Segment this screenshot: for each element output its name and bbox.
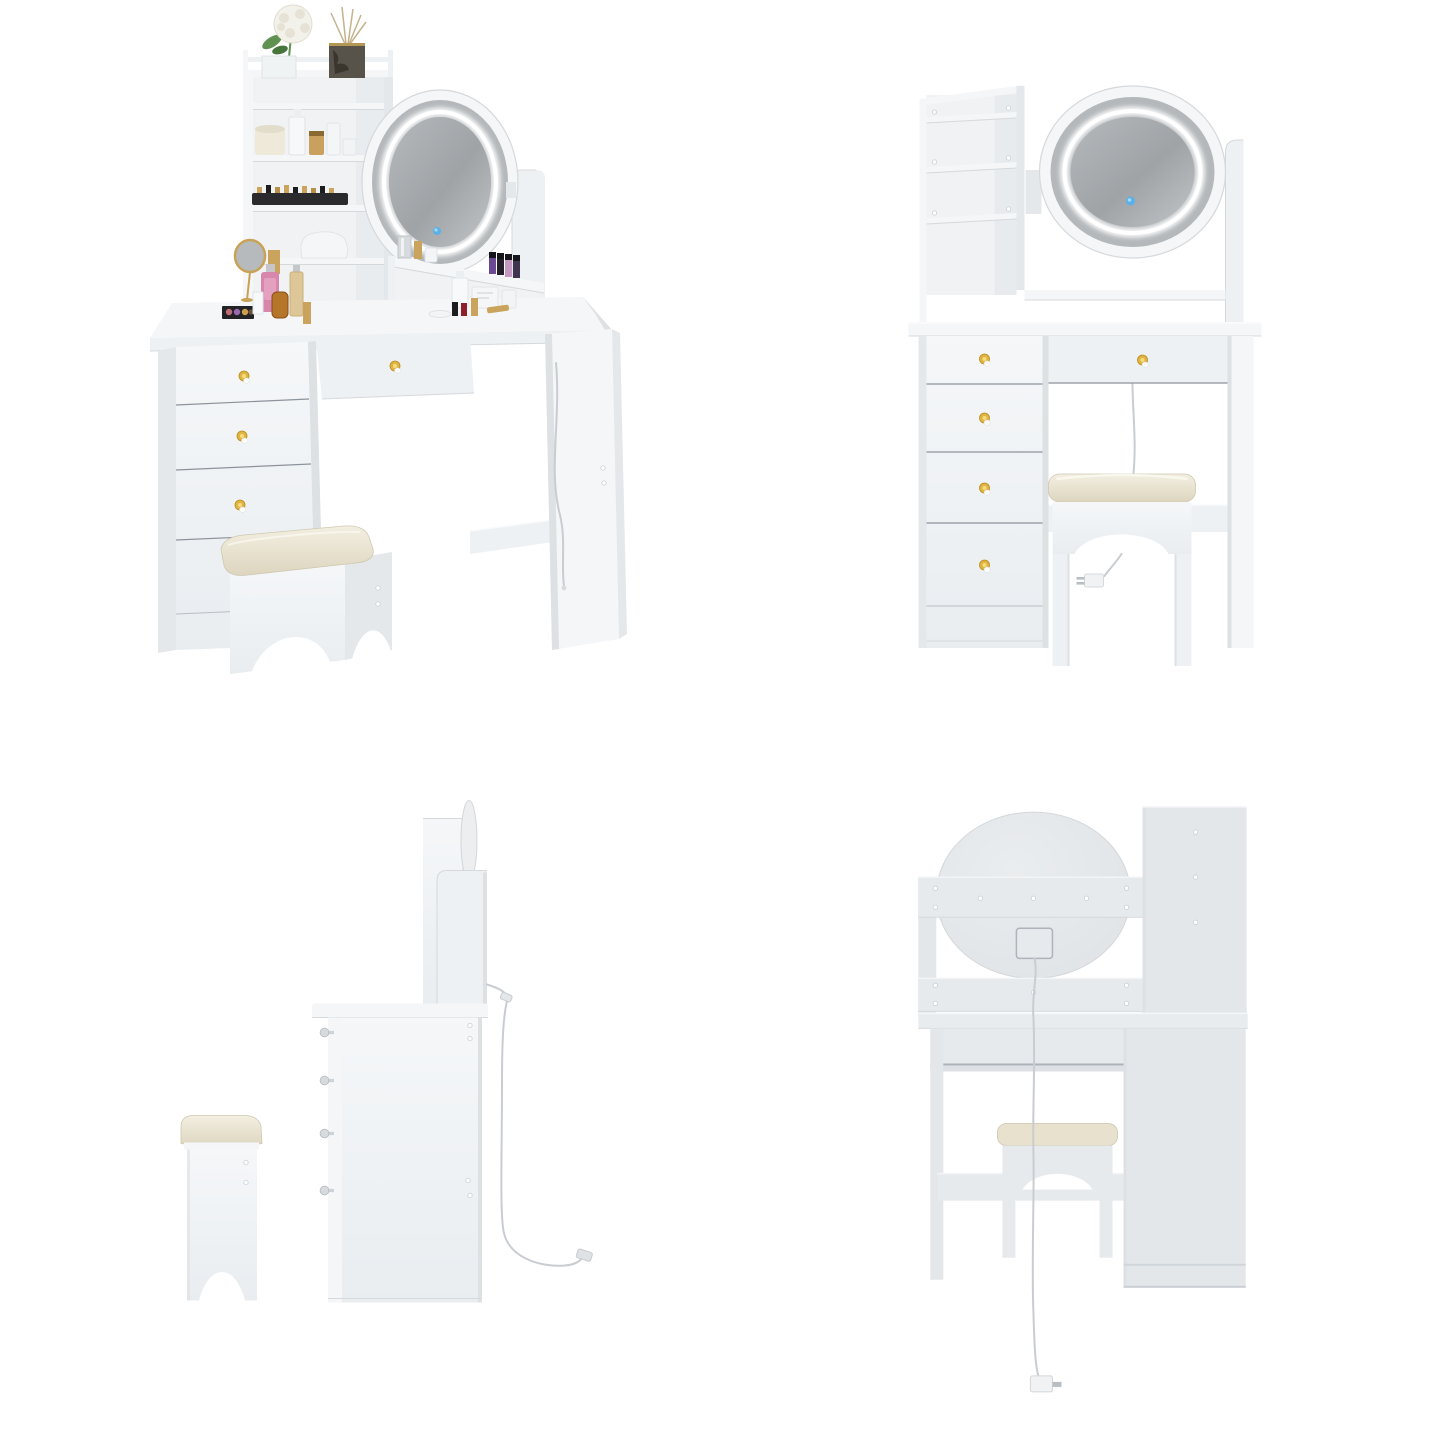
cabinet-side <box>328 1018 482 1303</box>
shelf-back <box>1143 807 1247 1013</box>
desktop <box>909 322 1262 336</box>
power-plug <box>1030 1376 1052 1392</box>
lower-rail <box>918 978 1143 1011</box>
left-side-back <box>930 1028 943 1279</box>
desktop <box>312 1004 488 1018</box>
led-junction-box <box>1016 928 1052 958</box>
power-cable <box>487 985 593 1266</box>
hutch-ledge <box>1025 290 1226 300</box>
desktop-back <box>918 1013 1247 1028</box>
cabinet-back <box>1124 1028 1246 1287</box>
mirror-pivot <box>506 182 516 198</box>
mirror-edge <box>461 801 477 881</box>
drawer-unit <box>919 336 1049 648</box>
product-image-grid <box>0 0 1445 1445</box>
vanity-back-view <box>722 722 1445 1445</box>
vanity-side-view <box>0 722 722 1445</box>
reed-diffuser <box>329 7 366 78</box>
storage-shelf <box>920 85 1025 325</box>
stool <box>1049 474 1196 666</box>
stool <box>221 526 392 674</box>
mirror-back-panel <box>1226 140 1244 323</box>
flower-vase <box>260 5 312 78</box>
pouch <box>301 232 348 258</box>
led-mirror <box>1040 86 1226 258</box>
vanity-angled-view <box>0 0 722 722</box>
upper-rail <box>918 877 1143 917</box>
nail-polish-set <box>489 252 520 278</box>
right-leg-panel <box>1228 336 1254 648</box>
drawer-back-panel <box>930 1028 1123 1071</box>
center-drawer <box>316 335 474 399</box>
center-drawer <box>1049 336 1228 383</box>
mirror-back-panel <box>437 871 487 1009</box>
vanity-front-view <box>722 0 1445 722</box>
led-mirror <box>362 90 518 274</box>
power-plug <box>1077 574 1104 587</box>
stool-side <box>181 1116 262 1301</box>
stool-cushion <box>181 1116 262 1147</box>
